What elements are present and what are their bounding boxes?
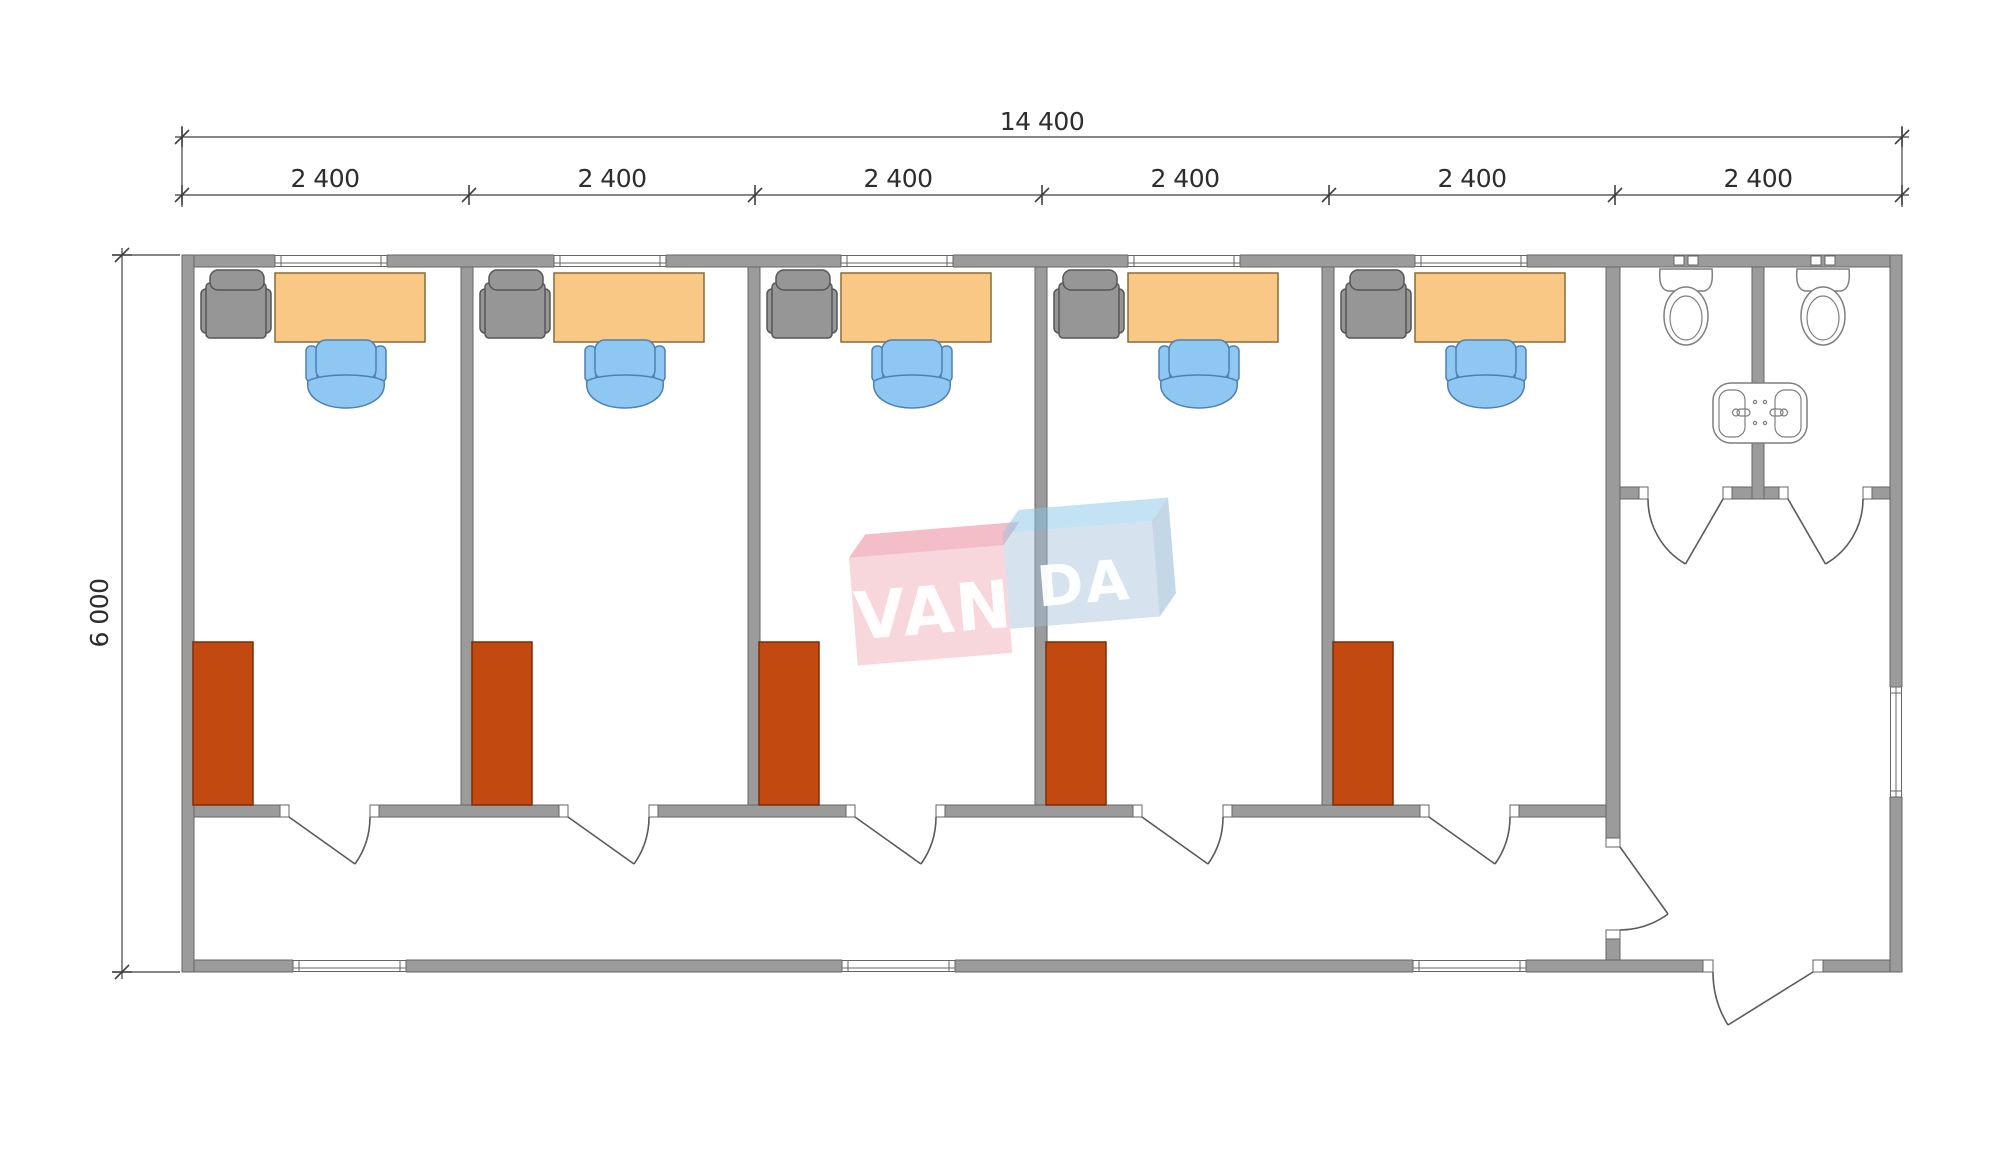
door-jamb: [1639, 487, 1648, 499]
dimension-label-module-6: 2 400: [1723, 164, 1792, 193]
south-window-1: [293, 958, 406, 974]
office-5: [1333, 253, 1565, 864]
partition-wall-4: [1322, 267, 1334, 817]
exterior-wall-south: [182, 960, 1902, 972]
partition-wall-1: [461, 267, 473, 817]
toilet-2: [1797, 256, 1850, 345]
watermark-text-da: DA: [1034, 548, 1133, 620]
vanda-watermark: VAN DA: [846, 498, 1180, 666]
sink-counter: [1713, 383, 1807, 443]
door-swing: [1713, 972, 1813, 1025]
door-swing: [1620, 847, 1668, 930]
floor-plan-drawing: 14 400 2 400 2 400 2 400 2 400 2 400 2 4…: [0, 0, 2000, 1172]
entrance-door: [1703, 958, 1823, 1025]
door-jamb: [1703, 960, 1713, 972]
lobby-door: [1604, 838, 1668, 939]
toilet-1: [1660, 256, 1713, 345]
dimension-label-module-5: 2 400: [1437, 164, 1506, 193]
exterior-wall-east: [1890, 255, 1902, 972]
door-swing: [1648, 499, 1723, 564]
south-window-2: [842, 958, 955, 974]
dimension-label-height: 6 000: [85, 578, 114, 647]
dimension-label-module-3: 2 400: [863, 164, 932, 193]
door-swing: [1788, 499, 1863, 564]
door-jamb: [1813, 960, 1823, 972]
door-jamb: [1723, 487, 1732, 499]
office-2: [472, 253, 704, 864]
dimension-label-module-4: 2 400: [1150, 164, 1219, 193]
door-jamb: [1606, 838, 1620, 847]
exterior-wall-west: [182, 255, 194, 972]
south-window-3: [1413, 958, 1526, 974]
watermark-text-van: VAN: [851, 566, 1016, 656]
partition-wall-2: [748, 267, 760, 817]
door-jamb: [1606, 930, 1620, 939]
dimension-label-module-1: 2 400: [290, 164, 359, 193]
double-sink: [1713, 383, 1807, 443]
office-1: [193, 253, 425, 864]
door-jamb: [1779, 487, 1788, 499]
door-jamb: [1863, 487, 1872, 499]
dimension-label-module-2: 2 400: [577, 164, 646, 193]
floor-plan-page: 14 400 2 400 2 400 2 400 2 400 2 400 2 4…: [0, 0, 2000, 1172]
exterior-wall-north: [182, 255, 1902, 267]
dimension-label-total-width: 14 400: [1000, 107, 1084, 136]
east-window: [1888, 687, 1904, 797]
